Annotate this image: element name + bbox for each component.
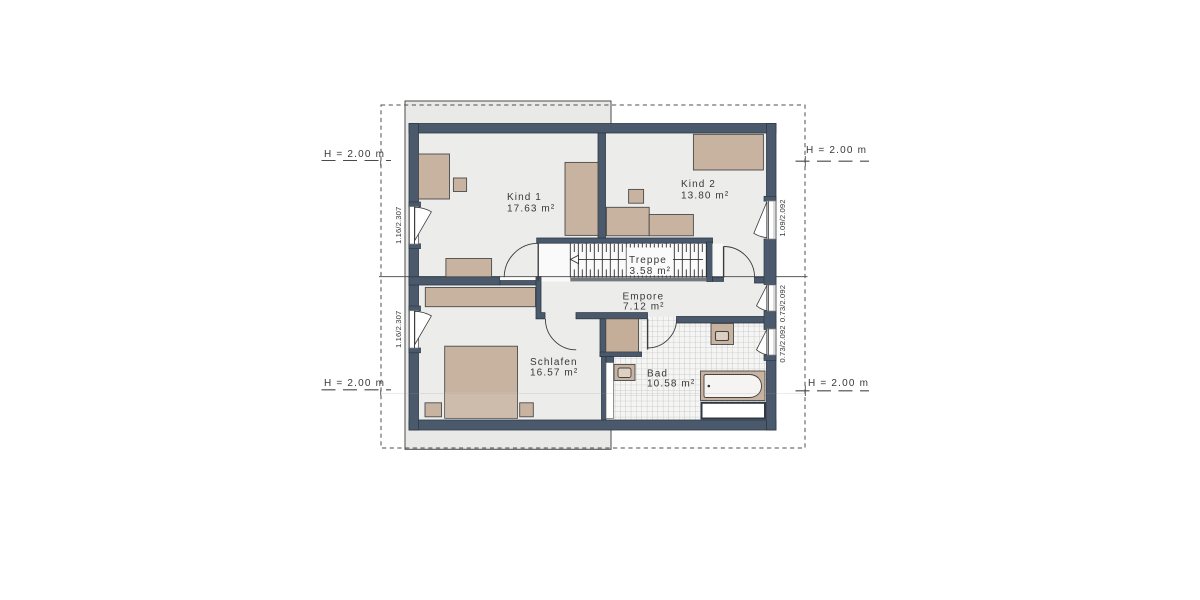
svg-text:1.16/2.307: 1.16/2.307 <box>394 311 403 348</box>
svg-text:0.73/2.092: 0.73/2.092 <box>778 285 787 322</box>
svg-text:3.58 m²: 3.58 m² <box>630 266 672 277</box>
svg-text:16.57 m²: 16.57 m² <box>530 368 578 379</box>
svg-text:0.73/2.092: 0.73/2.092 <box>778 325 787 362</box>
svg-text:H = 2.00 m: H = 2.00 m <box>324 149 385 160</box>
svg-text:17.63 m²: 17.63 m² <box>507 204 555 215</box>
svg-text:Kind 2: Kind 2 <box>681 179 716 190</box>
svg-text:Treppe: Treppe <box>629 255 667 266</box>
svg-text:13.80 m²: 13.80 m² <box>681 191 729 202</box>
svg-text:Schlafen: Schlafen <box>530 357 578 368</box>
svg-text:Kind 1: Kind 1 <box>507 192 542 203</box>
svg-text:H = 2.00 m: H = 2.00 m <box>324 378 385 389</box>
svg-text:1.16/2.307: 1.16/2.307 <box>394 207 403 244</box>
svg-text:7.12 m²: 7.12 m² <box>623 302 665 313</box>
svg-text:10.58 m²: 10.58 m² <box>647 379 695 390</box>
svg-text:1.09/2.092: 1.09/2.092 <box>778 199 787 236</box>
svg-text:H = 2.00 m: H = 2.00 m <box>808 378 869 389</box>
svg-text:H = 2.00 m: H = 2.00 m <box>806 145 867 156</box>
